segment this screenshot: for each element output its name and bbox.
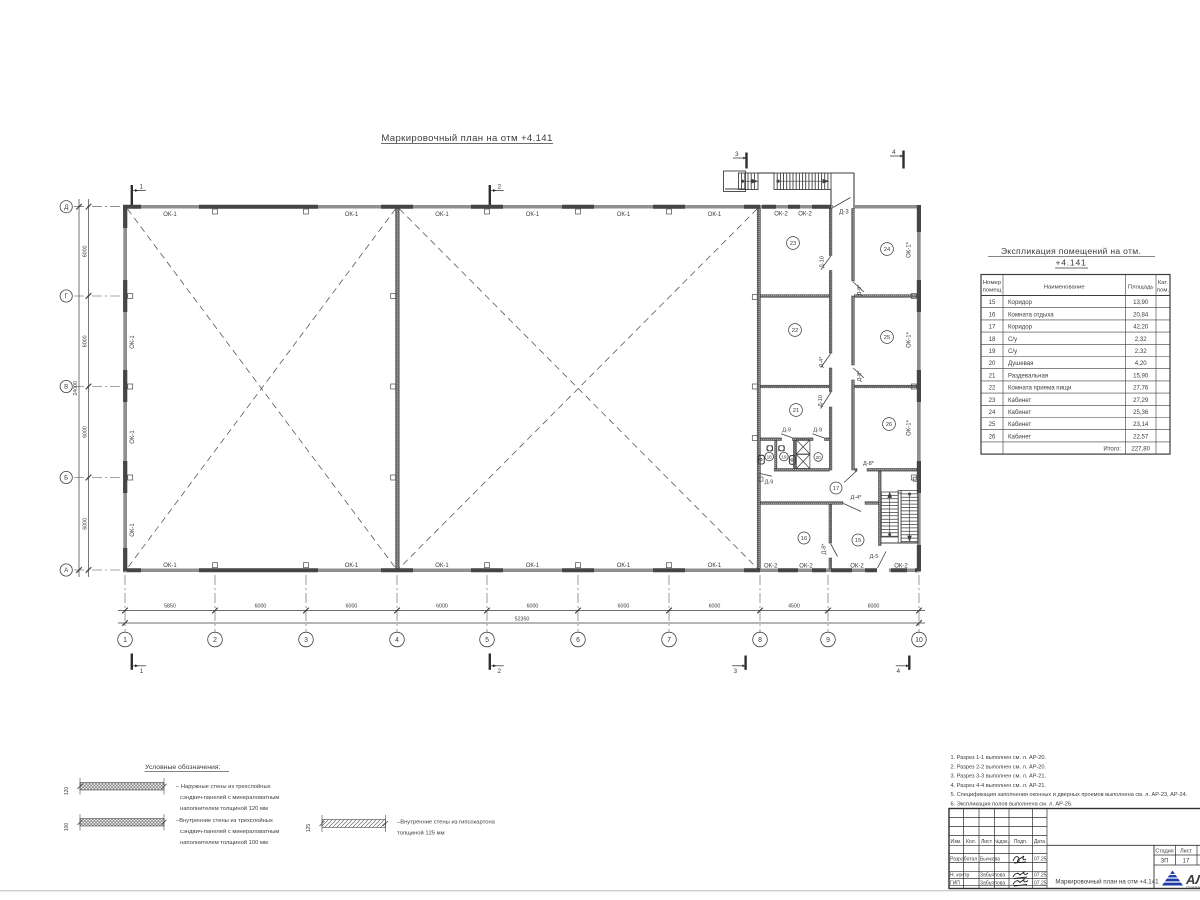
svg-text:2. Разрез 2-2 выполнен см. л.: 2. Разрез 2-2 выполнен см. л. АР-20. (951, 765, 1047, 771)
svg-text:Д-10: Д-10 (820, 256, 826, 268)
svg-text:Комната отдыха: Комната отдыха (1008, 311, 1054, 318)
svg-text:17: 17 (1183, 859, 1190, 865)
svg-text:17: 17 (989, 324, 996, 331)
svg-text:16: 16 (801, 536, 807, 542)
svg-text:Д-9: Д-9 (813, 428, 822, 434)
svg-text:ОК-2: ОК-2 (764, 564, 778, 570)
svg-text:Д-3: Д-3 (839, 210, 849, 216)
svg-text:4,20: 4,20 (1135, 360, 1147, 367)
svg-text:13,90: 13,90 (1133, 299, 1149, 306)
svg-text:ОК-1: ОК-1 (617, 563, 631, 569)
svg-text:24000: 24000 (73, 381, 79, 396)
svg-text:Коридор: Коридор (1008, 299, 1033, 306)
svg-text:4500: 4500 (788, 604, 800, 610)
svg-text:2: 2 (213, 637, 217, 644)
svg-text:№док.: №док. (994, 839, 1009, 845)
svg-text:наполнителем толщиной 120 мм: наполнителем толщиной 120 мм (180, 805, 268, 812)
svg-text:1: 1 (140, 668, 144, 675)
svg-text:Кабинет: Кабинет (1008, 409, 1031, 416)
svg-text:– Наружные стены из трехслойны: – Наружные стены из трехслойных (176, 783, 271, 790)
svg-text:Кол.: Кол. (966, 839, 976, 845)
svg-text:Комната приема пищи: Комната приема пищи (1008, 385, 1071, 392)
svg-text:4. Разрез 4-4 выполнен см. л.: 4. Разрез 4-4 выполнен см. л. АР-21. (951, 783, 1047, 789)
svg-text:ОК-2: ОК-2 (774, 212, 788, 218)
svg-text:ОК-1: ОК-1 (130, 523, 136, 537)
svg-text:6000: 6000 (709, 604, 721, 610)
svg-text:Лист: Лист (1180, 849, 1192, 855)
svg-text:ОК-2: ОК-2 (799, 564, 813, 570)
svg-text:ОК-2: ОК-2 (894, 564, 908, 570)
svg-text:52350: 52350 (515, 616, 530, 622)
svg-text:23: 23 (790, 241, 796, 247)
svg-text:ОК-1: ОК-1 (708, 212, 722, 218)
svg-text:+4.141: +4.141 (1055, 258, 1086, 268)
svg-text:07.25: 07.25 (1034, 872, 1047, 878)
svg-text:100: 100 (64, 823, 70, 832)
svg-text:Коридор: Коридор (1008, 324, 1033, 331)
svg-text:сэндвич-панелей с минераловатн: сэндвич-панелей с минераловатным (180, 828, 279, 835)
svg-text:19: 19 (781, 455, 787, 460)
svg-text:25: 25 (884, 335, 890, 341)
svg-text:Д-5: Д-5 (870, 554, 879, 560)
svg-text:23: 23 (989, 397, 996, 404)
svg-text:5850: 5850 (164, 604, 176, 610)
svg-text:Душевая: Душевая (1008, 360, 1033, 367)
svg-text:6000: 6000 (346, 604, 358, 610)
svg-text:22: 22 (792, 328, 798, 334)
svg-text:Д-8*: Д-8* (863, 461, 875, 467)
svg-text:21: 21 (793, 408, 799, 414)
svg-text:Д-9: Д-9 (765, 480, 774, 486)
svg-text:Н. контр: Н. контр (950, 872, 969, 878)
svg-text:Условные обозначения:: Условные обозначения: (145, 763, 220, 771)
svg-text:6000: 6000 (82, 426, 88, 438)
svg-text:3: 3 (734, 668, 738, 675)
svg-text:С/у: С/у (1008, 336, 1018, 343)
svg-text:2,32: 2,32 (1135, 348, 1147, 355)
svg-text:Д-9: Д-9 (782, 428, 791, 434)
svg-text:20,84: 20,84 (1133, 311, 1149, 318)
svg-text:23,14: 23,14 (1133, 421, 1149, 428)
svg-text:толщиной 125 мм: толщиной 125 мм (397, 830, 445, 837)
svg-text:–Внутренние стены из гипсокарт: –Внутренние стены из гипсокартона (397, 819, 496, 825)
svg-text:6000: 6000 (436, 604, 448, 610)
svg-text:Забьялова: Забьялова (980, 881, 1005, 887)
svg-text:ОК-1: ОК-1 (435, 563, 449, 569)
svg-text:26: 26 (989, 433, 996, 440)
svg-text:ОК-1: ОК-1 (617, 212, 631, 218)
svg-text:ОК-1: ОК-1 (345, 563, 359, 569)
svg-text:07.25: 07.25 (1034, 857, 1047, 863)
svg-text:Дата: Дата (1034, 839, 1045, 845)
svg-text:ОК-1: ОК-1 (526, 563, 540, 569)
svg-text:4: 4 (897, 668, 901, 675)
svg-text:2,32: 2,32 (1135, 336, 1147, 343)
svg-text:Кабинет: Кабинет (1008, 433, 1031, 440)
svg-text:19: 19 (989, 348, 996, 355)
svg-text:Кабинет: Кабинет (1008, 397, 1031, 404)
svg-text:6000: 6000 (868, 604, 880, 610)
svg-text:наполнителем толщиной 100 мм: наполнителем толщиной 100 мм (180, 839, 268, 846)
svg-text:3: 3 (304, 637, 308, 644)
svg-text:7: 7 (667, 637, 671, 644)
svg-text:сэндвич-панелей с минераловатн: сэндвич-панелей с минераловатным (180, 794, 279, 801)
svg-text:Д-4*: Д-4* (851, 495, 863, 501)
svg-text:25: 25 (989, 421, 996, 428)
svg-text:2: 2 (498, 184, 502, 191)
svg-text:17: 17 (833, 486, 839, 492)
svg-text:ОК-1: ОК-1 (130, 335, 136, 349)
svg-text:ОК-1: ОК-1 (345, 212, 359, 218)
svg-text:В: В (64, 384, 68, 391)
svg-text:Бычкова: Бычкова (980, 857, 1000, 863)
svg-text:Площадь: Площадь (1128, 285, 1154, 291)
svg-text:6000: 6000 (82, 518, 88, 530)
svg-text:ОК-1*: ОК-1* (906, 419, 912, 435)
svg-text:22: 22 (989, 385, 996, 392)
svg-text:6000: 6000 (255, 604, 267, 610)
svg-text:18: 18 (989, 336, 996, 343)
svg-text:1: 1 (140, 184, 144, 191)
svg-text:Лист: Лист (981, 839, 993, 845)
svg-text:5. Спецификация заполнения око: 5. Спецификация заполнения оконных и две… (951, 792, 1188, 798)
svg-text:Раздевальная: Раздевальная (1008, 372, 1048, 379)
svg-text:Итого:: Итого: (1103, 446, 1121, 453)
svg-text:24: 24 (989, 409, 996, 416)
svg-text:ОК-1: ОК-1 (163, 563, 177, 569)
svg-text:Д-8*: Д-8* (857, 284, 863, 296)
svg-text:10: 10 (915, 637, 923, 644)
svg-text:ОК-1: ОК-1 (708, 563, 722, 569)
svg-text:Наименование: Наименование (1044, 285, 1086, 291)
svg-text:ОК-1: ОК-1 (130, 430, 136, 444)
svg-text:21: 21 (989, 372, 996, 379)
svg-text:4: 4 (395, 637, 399, 644)
svg-text:Д-4*: Д-4* (819, 356, 825, 368)
svg-text:Д-10: Д-10 (818, 395, 824, 407)
svg-text:1: 1 (123, 637, 127, 644)
svg-text:Б: Б (64, 475, 68, 482)
svg-text:3: 3 (735, 151, 739, 158)
svg-text:27,29: 27,29 (1133, 397, 1149, 404)
svg-text:Кабинет: Кабинет (1008, 421, 1031, 428)
svg-text:2: 2 (498, 668, 502, 675)
svg-text:26: 26 (886, 422, 892, 428)
svg-text:ОК-2: ОК-2 (798, 212, 812, 218)
svg-text:227,80: 227,80 (1131, 446, 1150, 453)
svg-text:Забьялова: Забьялова (980, 872, 1005, 878)
svg-text:8: 8 (758, 637, 762, 644)
svg-text:125: 125 (306, 824, 312, 833)
svg-text:15,90: 15,90 (1133, 372, 1149, 379)
svg-text:6000: 6000 (82, 335, 88, 347)
svg-text:ОК-1*: ОК-1* (906, 331, 912, 347)
svg-text:ОК-1: ОК-1 (526, 212, 540, 218)
svg-text:9: 9 (826, 637, 830, 644)
svg-text:ГИП: ГИП (950, 881, 960, 887)
svg-text:пом.: пом. (1157, 288, 1170, 294)
svg-text:4: 4 (892, 149, 896, 156)
svg-text:22,57: 22,57 (1133, 433, 1149, 440)
svg-text:Подп.: Подп. (1014, 839, 1028, 845)
svg-text:18: 18 (767, 455, 773, 460)
svg-text:ОК-1: ОК-1 (435, 212, 449, 218)
svg-text:20: 20 (816, 455, 822, 460)
svg-text:Разработал: Разработал (950, 857, 977, 863)
svg-text:помещ: помещ (983, 288, 1002, 294)
svg-text:27,76: 27,76 (1133, 385, 1149, 392)
svg-text:15: 15 (855, 538, 861, 544)
svg-text:6000: 6000 (618, 604, 630, 610)
svg-text:1. Разрез 1-1 выполнен см. л.: 1. Разрез 1-1 выполнен см. л. АР-20. (951, 755, 1047, 761)
svg-text:С/у: С/у (1008, 348, 1018, 355)
svg-text:Экспликация помещений на отм.: Экспликация помещений на отм. (1001, 246, 1141, 256)
svg-text:строительная компания: строительная компания (1186, 885, 1200, 889)
svg-text:5: 5 (485, 637, 489, 644)
svg-text:3. Разрез 3-3 выполнен см. л.: 3. Разрез 3-3 выполнен см. л. АР-21. (951, 774, 1047, 780)
svg-text:24: 24 (884, 247, 891, 253)
svg-text:16: 16 (989, 311, 996, 318)
svg-text:Маркировочный план на отм +4.1: Маркировочный план на отм +4.141 (381, 133, 552, 144)
svg-text:Маркировочный план на отм +4.1: Маркировочный план на отм +4.141 (1055, 879, 1159, 886)
svg-text:07.25: 07.25 (1034, 881, 1047, 887)
svg-text:ОК-2: ОК-2 (850, 564, 864, 570)
svg-text:6000: 6000 (527, 604, 539, 610)
svg-text:ОК-1: ОК-1 (163, 212, 177, 218)
svg-text:15: 15 (989, 299, 996, 306)
svg-text:6: 6 (576, 637, 580, 644)
svg-text:ОК-1*: ОК-1* (906, 241, 912, 257)
svg-text:Изм.: Изм. (951, 839, 962, 845)
svg-text:Д-8*: Д-8* (821, 543, 827, 555)
svg-text:Номер: Номер (983, 280, 1002, 286)
svg-text:Д-8*: Д-8* (857, 370, 863, 382)
svg-text:ЗП: ЗП (1161, 859, 1169, 865)
svg-text:25,36: 25,36 (1133, 409, 1149, 416)
svg-text:6. Экспликация полов выполнена: 6. Экспликация полов выполнена см. л. АР… (951, 802, 1073, 808)
svg-text:120: 120 (64, 787, 70, 796)
svg-text:–Внутренние стены из трехслойн: –Внутренние стены из трехслойных (176, 817, 273, 824)
svg-text:6000: 6000 (82, 245, 88, 257)
svg-text:42,20: 42,20 (1133, 324, 1149, 331)
svg-text:20: 20 (989, 360, 996, 367)
svg-text:Кат.: Кат. (1158, 280, 1169, 286)
svg-text:Стадия: Стадия (1155, 849, 1173, 855)
